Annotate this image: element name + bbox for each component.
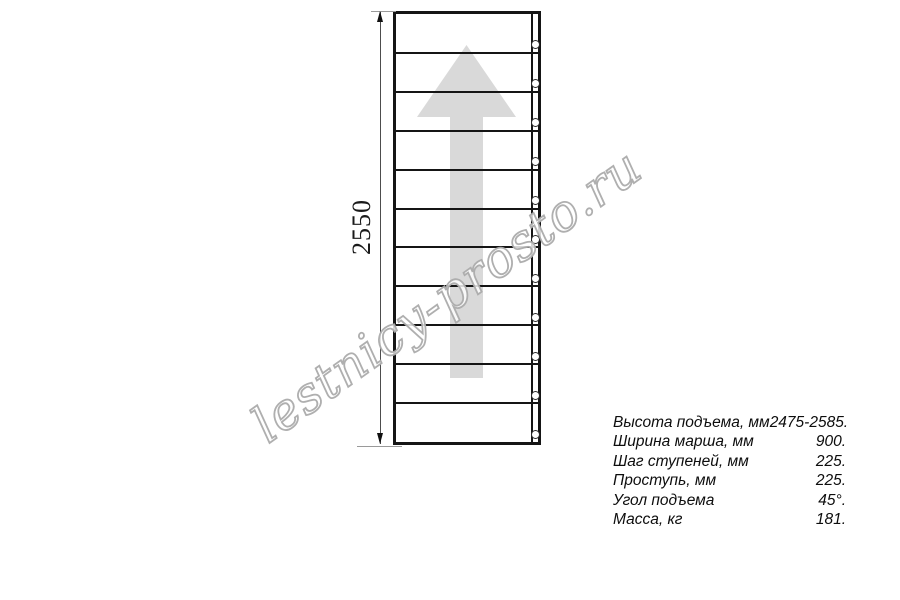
bolt-hole-circle [531,430,540,439]
step-edge-line [396,324,538,326]
spec-value: 2475-2585. [770,413,848,432]
extension-line-bottom [357,446,402,447]
spec-row: Ширина марша, мм 900. [613,432,846,451]
spec-value: 45°. [818,491,846,510]
stair-flight-plan [393,11,541,445]
stringer-divider-line [531,14,533,442]
spec-row: Масса, кг 181. [613,510,846,529]
bolt-hole-circle [531,313,540,322]
bolt-hole-circle [531,352,540,361]
bolt-hole-circle [531,79,540,88]
spec-label: Ширина марша, мм [613,432,754,451]
dimension-arrowhead-down-icon [377,433,383,444]
spec-label: Проступь, мм [613,471,716,490]
step-edge-line [396,402,538,404]
spec-row: Шаг ступеней, мм 225. [613,452,846,471]
bolt-hole-circle [531,118,540,127]
step-edge-line [396,208,538,210]
extension-line-top [371,11,396,12]
step-edge-line [396,285,538,287]
step-edge-line [396,363,538,365]
drawing-canvas: 2550 Высота подъема, мм 2475-2585. Ширин… [0,0,900,600]
step-edge-line [396,169,538,171]
spec-label: Масса, кг [613,510,682,529]
bolt-hole-circle [531,157,540,166]
dimension-line [380,12,381,444]
step-edge-line [396,130,538,132]
step-edge-line [396,52,538,54]
spec-value: 225. [816,452,846,471]
spec-value: 181. [816,510,846,529]
spec-label: Угол подъема [613,491,714,510]
step-edge-line [396,246,538,248]
bolt-hole-circle [531,40,540,49]
bolt-hole-circle [531,391,540,400]
spec-value: 900. [816,432,846,451]
spec-label: Высота подъема, мм [613,413,770,432]
bolt-hole-circle [531,274,540,283]
bolt-hole-circle [531,235,540,244]
dimension-arrowhead-up-icon [377,11,383,22]
dimension-label: 2550 [347,199,377,255]
step-edge-line [396,91,538,93]
spec-row: Проступь, мм 225. [613,471,846,490]
bolt-hole-circle [531,196,540,205]
spec-row: Высота подъема, мм 2475-2585. [613,413,846,432]
specs-table: Высота подъема, мм 2475-2585. Ширина мар… [613,413,846,529]
spec-row: Угол подъема 45°. [613,491,846,510]
spec-label: Шаг ступеней, мм [613,452,749,471]
spec-value: 225. [816,471,846,490]
